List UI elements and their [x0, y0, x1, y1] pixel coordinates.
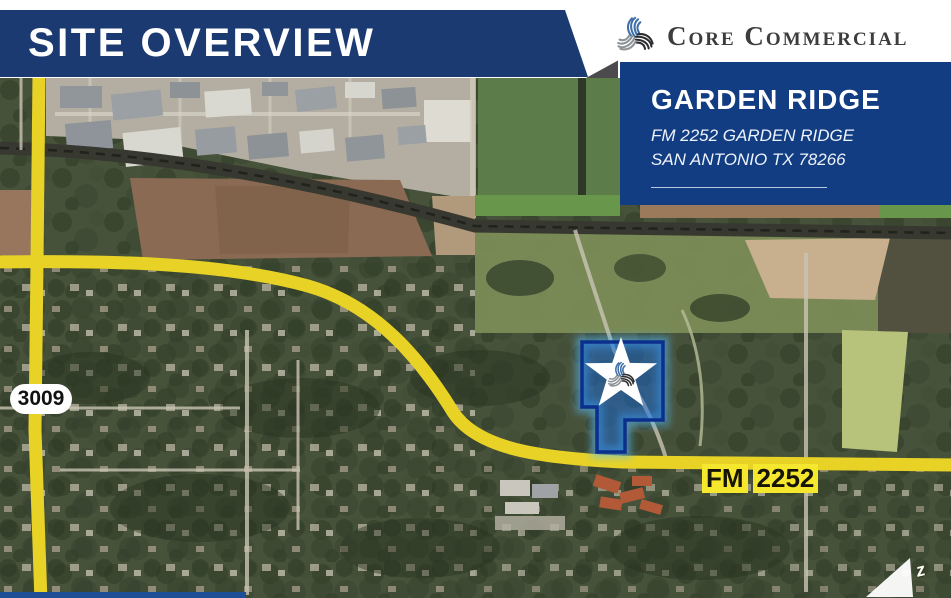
- card-divider: [651, 187, 827, 188]
- highway-label-fm2252: FM 2252: [702, 464, 818, 493]
- fm-label-part2: 2252: [753, 464, 819, 493]
- brand-name: Core Commercial: [667, 21, 908, 52]
- property-address-line1: FM 2252 GARDEN RIDGE: [651, 124, 951, 148]
- page-title-banner: SITE OVERVIEW: [0, 10, 588, 77]
- fm-label-part1: FM: [702, 464, 748, 493]
- core-commercial-swirl-icon: [612, 13, 658, 59]
- banner-shadow-wedge: [586, 59, 618, 78]
- bottom-blue-bar: [0, 592, 246, 598]
- property-address-line2: SAN ANTONIO TX 78266: [651, 148, 951, 172]
- highway-3009: [35, 78, 41, 598]
- property-card: GARDEN RIDGE FM 2252 GARDEN RIDGE SAN AN…: [620, 62, 951, 205]
- brand-logo: Core Commercial: [612, 11, 951, 61]
- route-shield-3009: 3009: [10, 384, 72, 414]
- page-title: SITE OVERVIEW: [28, 21, 375, 66]
- site-overview-flyer: 3009 FM 2252 z SITE OVERVIEW Core Commer…: [0, 0, 951, 598]
- property-name: GARDEN RIDGE: [651, 84, 951, 116]
